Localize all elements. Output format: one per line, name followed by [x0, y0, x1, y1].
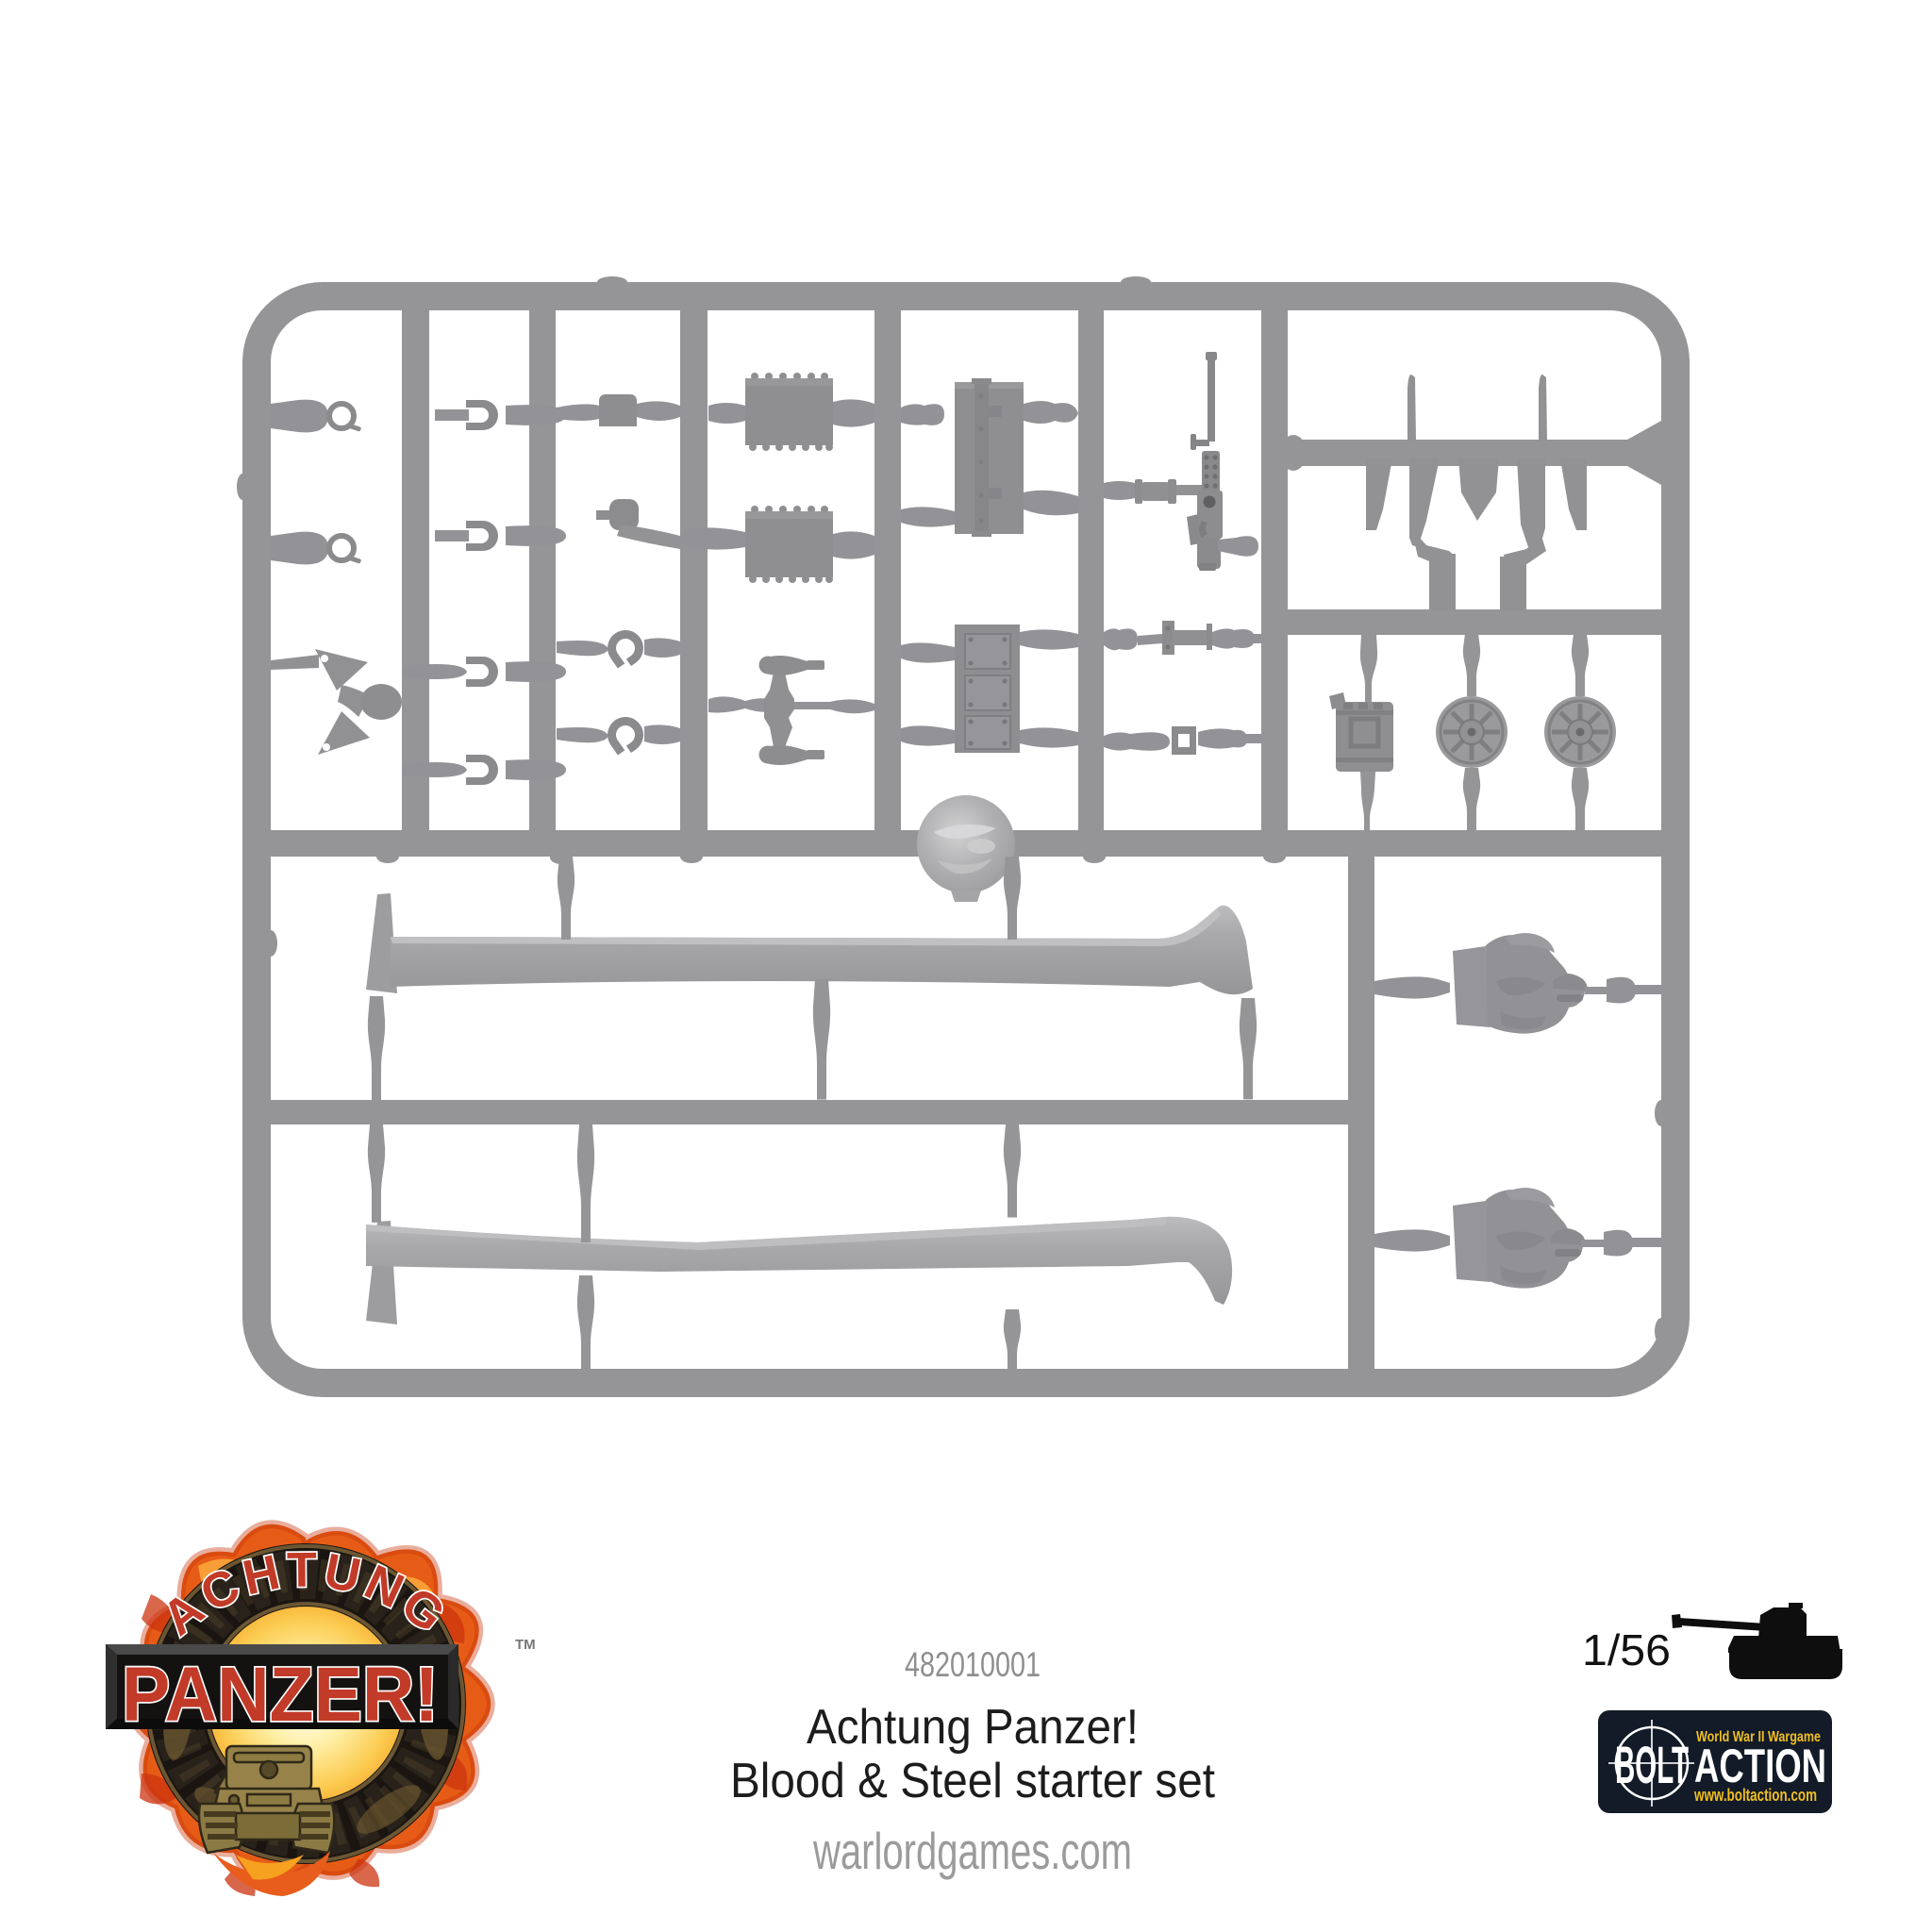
- svg-text:BOLT: BOLT: [1615, 1735, 1689, 1794]
- svg-text:warlordgames.com: warlordgames.com: [812, 1822, 1132, 1880]
- svg-text:482010001: 482010001: [905, 1645, 1041, 1684]
- svg-text:Blood & Steel starter set: Blood & Steel starter set: [730, 1754, 1215, 1808]
- svg-text:1/56: 1/56: [1582, 1625, 1671, 1674]
- svg-text:ACTION: ACTION: [1694, 1740, 1826, 1792]
- svg-text:TM: TM: [515, 1637, 536, 1653]
- svg-text:PANZER!: PANZER!: [122, 1652, 439, 1738]
- svg-text:www.boltaction.com: www.boltaction.com: [1693, 1786, 1817, 1805]
- svg-text:Achtung Panzer!: Achtung Panzer!: [807, 1700, 1139, 1755]
